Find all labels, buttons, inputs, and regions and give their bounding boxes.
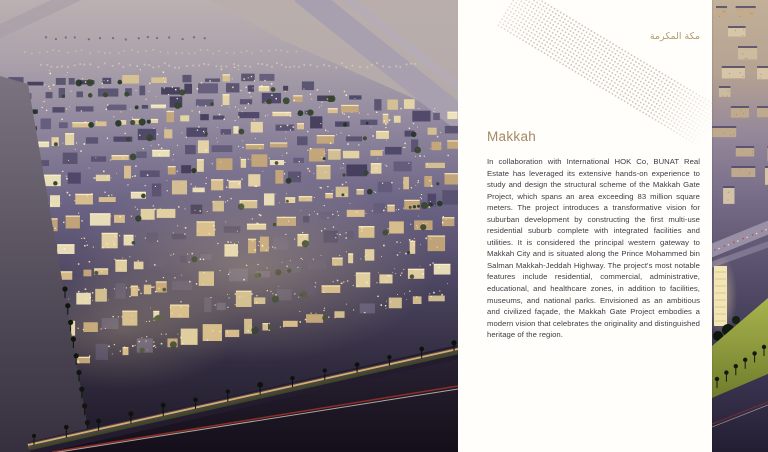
page-title: Makkah bbox=[487, 129, 536, 144]
brochure-spread: مكة المكرمة Makkah In collaboration with… bbox=[0, 0, 768, 452]
arabic-city-title: مكة المكرمة bbox=[650, 31, 700, 42]
next-page-illustration bbox=[712, 0, 768, 452]
next-page-render-edge bbox=[712, 0, 768, 452]
content-panel: مكة المكرمة Makkah In collaboration with… bbox=[458, 0, 712, 452]
aerial-render-illustration bbox=[0, 0, 458, 452]
project-description-paragraph: In collaboration with International HOK … bbox=[487, 156, 700, 341]
makkah-aerial-night-render bbox=[0, 0, 458, 452]
